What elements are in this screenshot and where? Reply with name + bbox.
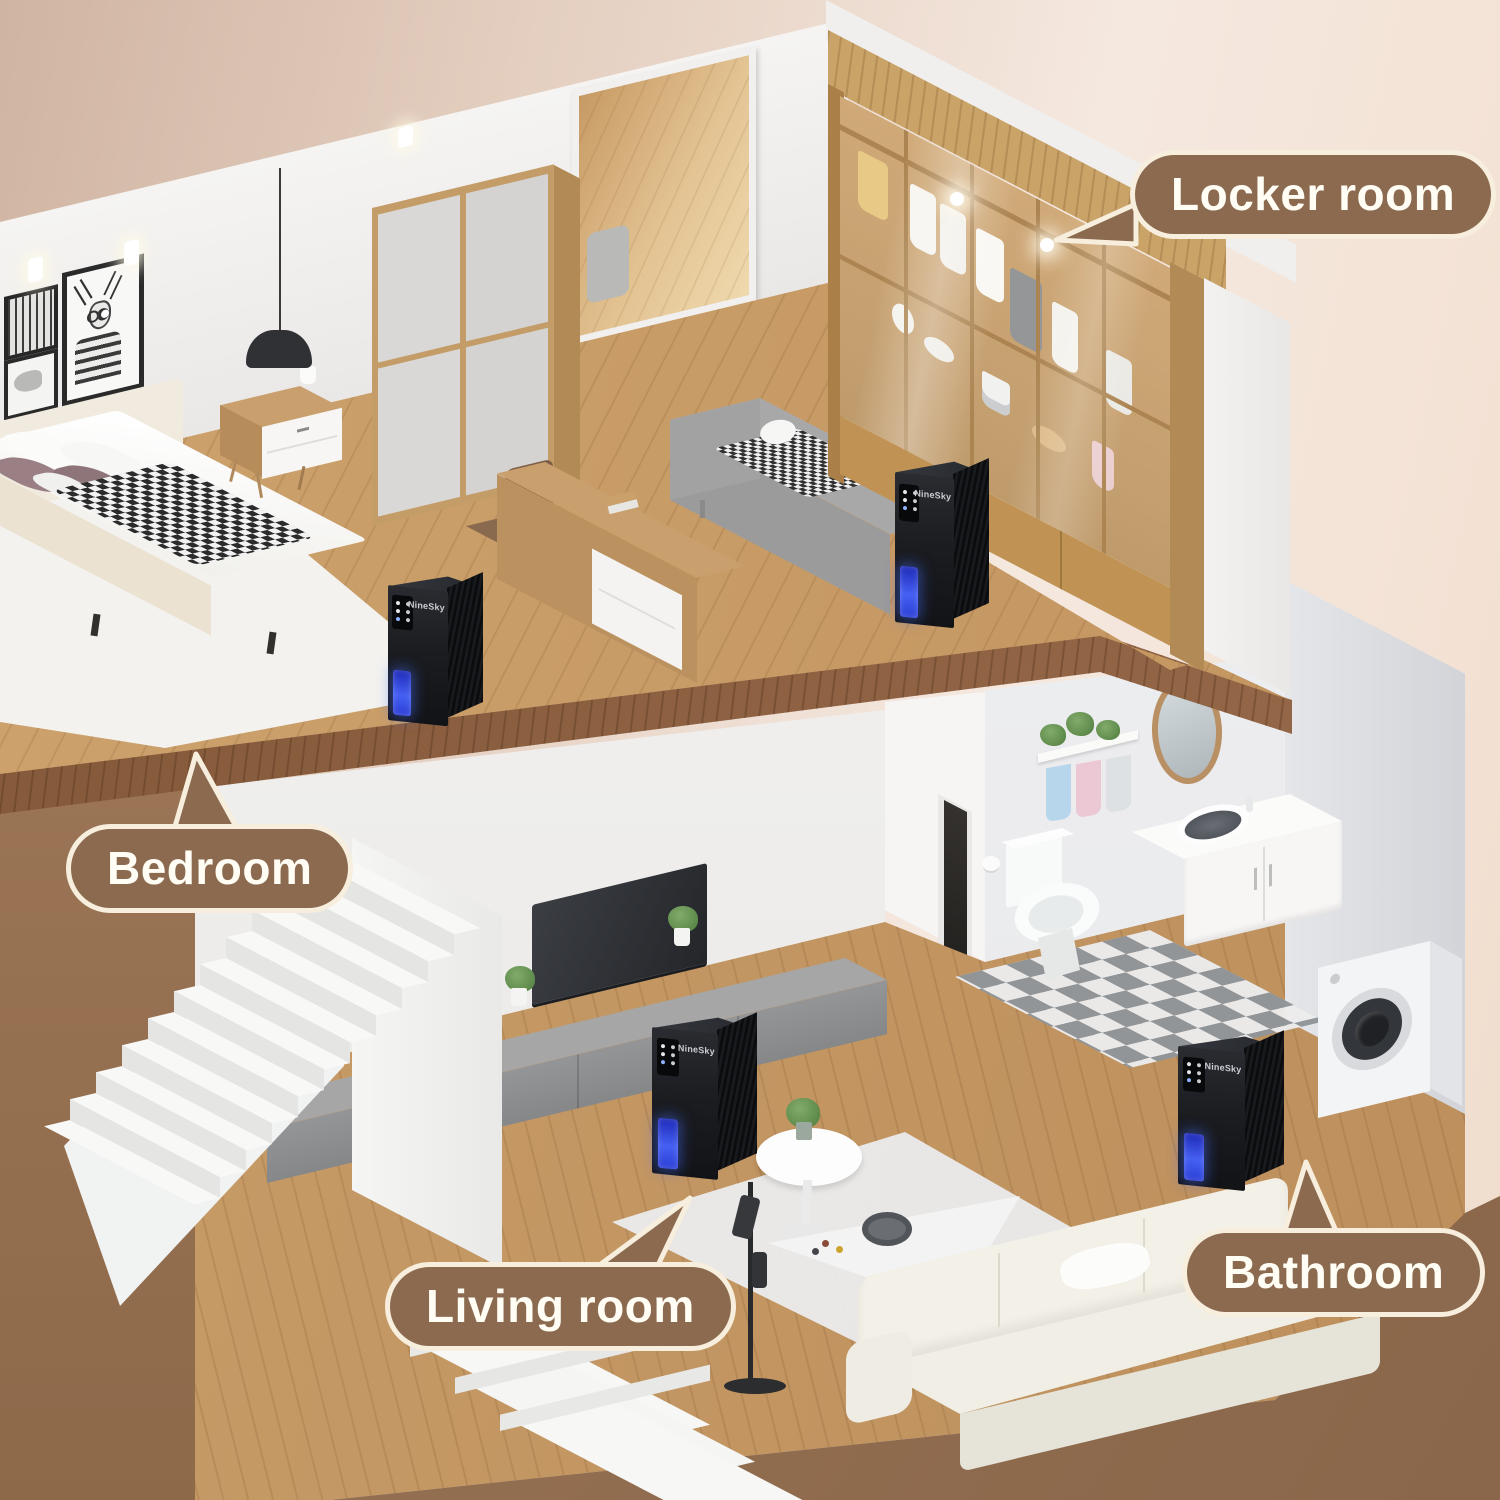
vanity-handle [1269,864,1272,887]
poster-deer [62,253,144,407]
scene: NineSky NineSky NineSky NineSky [0,0,1500,1500]
device-front: NineSky [1178,1046,1245,1191]
divider-wardrobe-side [554,165,580,499]
hall-mirror [572,47,756,345]
wall-light-icon [124,239,139,267]
vanity-door-seam [1263,847,1265,921]
plant-pot [511,988,527,1006]
closet-light-icon [950,192,964,206]
drawer-seam [599,588,675,629]
towel-gray [1106,755,1131,813]
control-panel [657,1038,679,1077]
daybed-leg [700,500,705,518]
wall-light-icon [28,256,43,284]
floor-lamp-shade [752,1252,767,1288]
brand-label: NineSky [678,1043,715,1057]
callout-locker-room: Locker room [1130,150,1496,239]
horse-sketch [14,368,42,395]
towel-blue [1046,764,1071,822]
callout-pill: Bathroom [1182,1228,1485,1317]
water-tank-window [900,565,918,618]
sofa-seam [998,1253,1000,1327]
floor-lamp-base [724,1378,786,1394]
wardrobe-panel [378,195,460,363]
drawer-handle [297,427,309,433]
device-side-vents [447,572,483,718]
callout-label: Locker room [1171,168,1455,220]
vanity-handle [1254,868,1257,891]
sofa-armrest [846,1328,912,1426]
toilet-paper [982,856,1000,871]
callout-pill: Locker room [1130,150,1496,239]
faucet [1246,796,1253,812]
callout-bathroom: Bathroom [1182,1228,1485,1317]
device-front: NineSky [895,472,954,628]
towel-pink [1076,760,1101,818]
deer-sweater [75,330,121,385]
callout-pill: Bedroom [66,824,353,913]
control-panel [1183,1056,1206,1093]
drawer-seam [267,435,337,454]
mirror-reflection [587,224,629,304]
device-front: NineSky [652,1027,718,1180]
bowl-icon [862,1212,912,1246]
washing-machine [1318,941,1430,1118]
callout-pill: Living room [385,1262,736,1351]
washer-dial [1330,973,1340,985]
callout-living-room: Living room [385,1262,736,1351]
brand-label: NineSky [1205,1061,1242,1075]
callout-label: Bedroom [107,842,312,894]
console-seam [577,1054,579,1108]
deer-antler [109,275,122,299]
plant-vase [796,1122,812,1140]
device-front: NineSky [388,585,448,726]
dehumidifier-locker-room: NineSky [895,460,989,625]
callout-tail [166,748,266,832]
water-tank-window [393,669,411,717]
callout-label: Bathroom [1223,1246,1444,1298]
brand-label: NineSky [408,600,445,614]
plant-icon [1066,712,1094,736]
upper-right-wall [1204,278,1290,695]
plant-icon [1040,724,1066,746]
device-side-vents [717,1012,757,1171]
callout-label: Living room [426,1280,695,1332]
dehumidifier-bedroom: NineSky [388,575,483,723]
closet-right-column [1170,262,1204,672]
plant-pot [674,928,690,946]
pendant-cord [279,168,281,332]
device-side-vents [953,458,989,619]
water-tank-window [1184,1132,1204,1181]
drawer-seam [1060,531,1062,590]
wardrobe-panel [378,349,460,517]
brand-label: NineSky [914,487,951,501]
callout-tail [1050,200,1140,260]
water-tank-window [658,1118,678,1170]
deer-antler [73,286,86,306]
bathroom-door [944,800,967,964]
wardrobe-panel [466,174,548,342]
callout-bedroom: Bedroom [66,824,353,913]
dehumidifier-living-room: NineSky [652,1016,757,1176]
plant-icon [1096,720,1120,740]
nightstand-vase [300,366,316,384]
wall-light-icon [398,125,413,149]
table-decor [822,1240,829,1247]
